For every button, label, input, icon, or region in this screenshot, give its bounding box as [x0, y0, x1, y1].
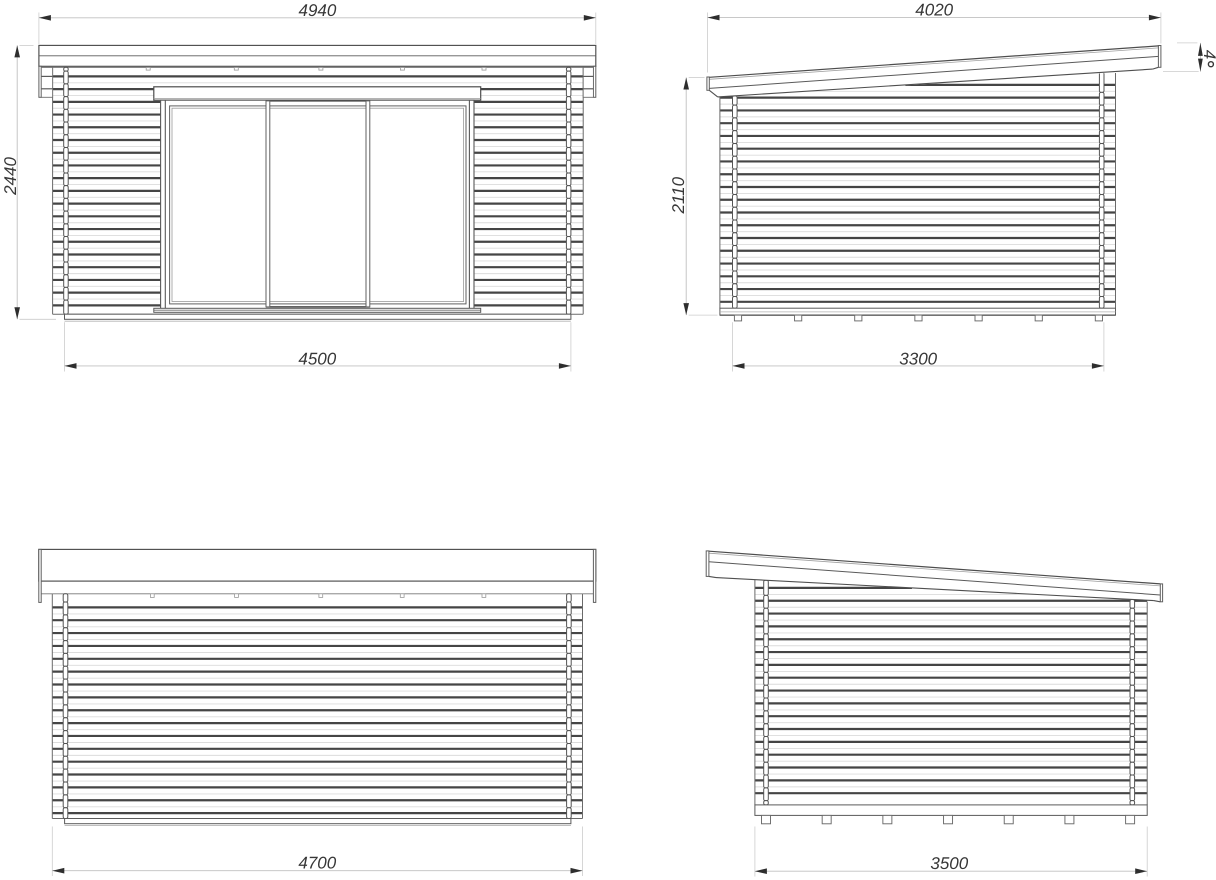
svg-text:2440: 2440 [1, 157, 20, 196]
svg-text:4940: 4940 [298, 1, 336, 20]
svg-text:4500: 4500 [298, 349, 336, 368]
svg-text:4: 4 [1200, 50, 1216, 59]
svg-text:4020: 4020 [915, 1, 953, 20]
svg-text:4700: 4700 [298, 854, 336, 873]
svg-text:3500: 3500 [930, 854, 968, 873]
svg-text:3300: 3300 [899, 349, 937, 368]
svg-text:2110: 2110 [669, 176, 688, 214]
